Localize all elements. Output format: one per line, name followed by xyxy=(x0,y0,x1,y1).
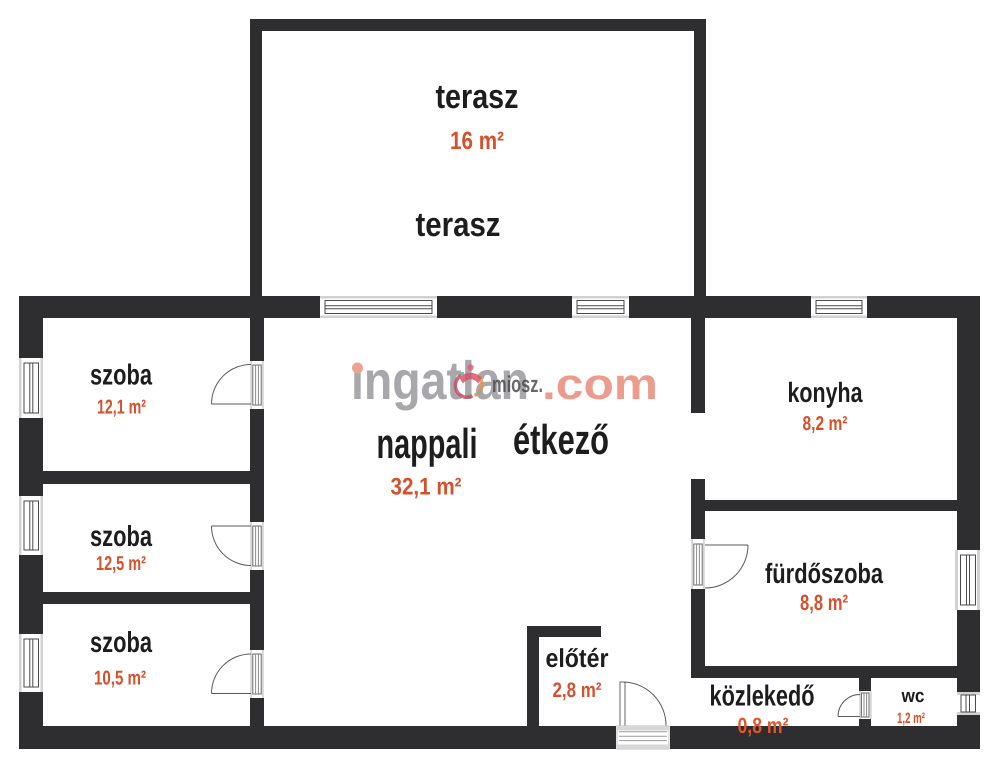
svg-text:12,5 m²: 12,5 m² xyxy=(96,553,146,575)
svg-text:étkező: étkező xyxy=(513,416,609,463)
svg-text:terasz: terasz xyxy=(416,206,501,244)
svg-text:16 m²: 16 m² xyxy=(450,127,504,155)
svg-text:szoba: szoba xyxy=(90,627,153,659)
svg-text:0,8 m²: 0,8 m² xyxy=(738,713,789,738)
svg-text:szoba: szoba xyxy=(90,360,153,392)
svg-text:.com: .com xyxy=(542,360,658,409)
svg-text:nappali: nappali xyxy=(377,420,478,467)
svg-text:1,2 m²: 1,2 m² xyxy=(897,710,925,727)
svg-text:előtér: előtér xyxy=(546,643,609,673)
svg-text:32,1 m²: 32,1 m² xyxy=(391,474,462,501)
svg-text:miosz.: miosz. xyxy=(492,371,543,397)
svg-text:8,2 m²: 8,2 m² xyxy=(803,413,848,435)
svg-text:2,8 m²: 2,8 m² xyxy=(553,679,602,702)
svg-text:8,8 m²: 8,8 m² xyxy=(800,590,848,615)
svg-text:közlekedő: közlekedő xyxy=(710,681,815,713)
svg-text:terasz: terasz xyxy=(436,78,519,116)
svg-text:10,5 m²: 10,5 m² xyxy=(94,668,146,690)
svg-text:szoba: szoba xyxy=(90,521,153,553)
svg-text:12,1 m²: 12,1 m² xyxy=(97,397,146,419)
svg-text:wc: wc xyxy=(901,686,925,707)
svg-text:fürdőszoba: fürdőszoba xyxy=(765,558,883,589)
svg-text:konyha: konyha xyxy=(788,377,863,408)
